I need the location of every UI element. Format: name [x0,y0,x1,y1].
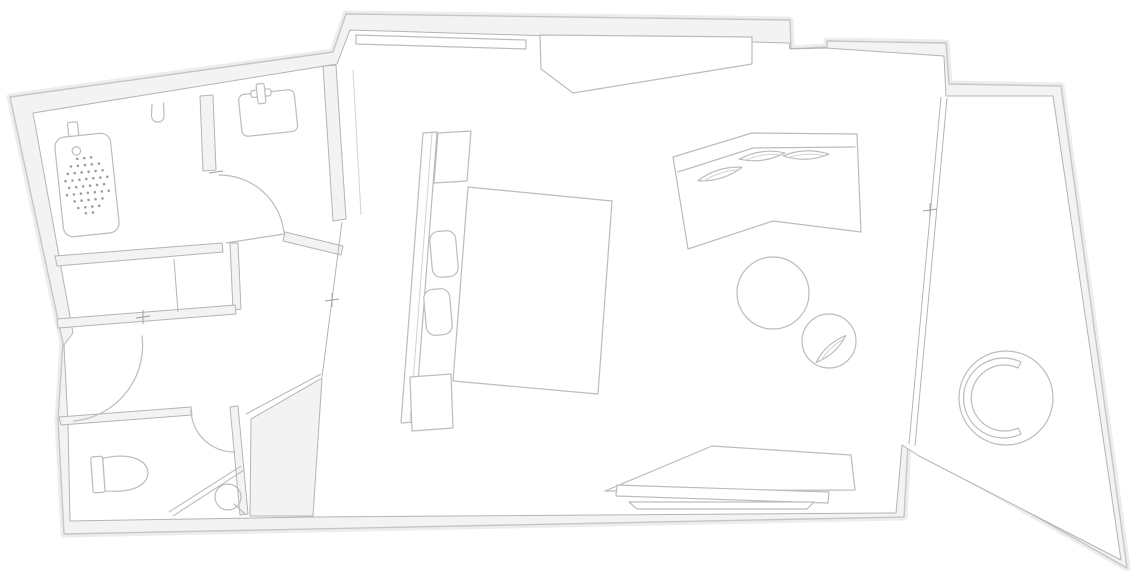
faucet-spout [256,83,266,104]
coffee-table [737,257,809,329]
console-lip [629,502,814,509]
lounge-chair [802,314,856,368]
round-balcony-chair [959,351,1053,445]
nightstand-bottom [410,374,453,431]
mattress [453,187,612,394]
wall-tub-vanity [200,95,216,171]
bathtub-rim [54,132,120,237]
nightstand-top [434,131,471,183]
pillow-1 [429,230,459,278]
floor-plan [0,0,1142,580]
floor-plan-page [0,0,1142,580]
pillow-2 [423,288,453,336]
balcony-furniture [959,351,1053,445]
